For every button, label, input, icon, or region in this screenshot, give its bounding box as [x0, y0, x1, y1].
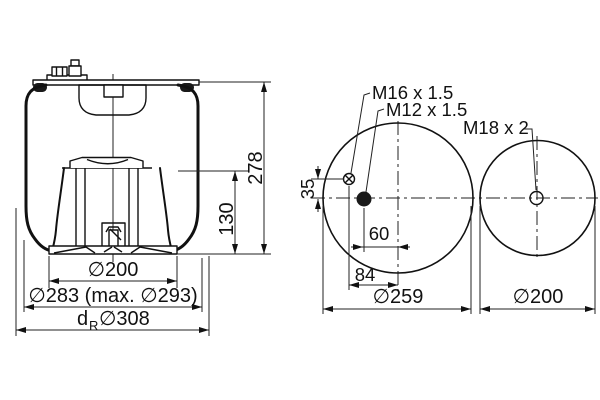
bellows-outline-left	[26, 85, 52, 251]
drawing-svg: 278 130 ∅200 ∅283 (max. ∅293)	[0, 0, 600, 400]
dimension-dia-piston: ∅200	[49, 256, 177, 288]
dimension-dia-259: ∅259	[323, 206, 471, 314]
dim-35-label: 35	[297, 179, 318, 200]
dim-dia-200-top-label: ∅200	[513, 286, 564, 308]
mounting-stud	[69, 60, 81, 76]
dim-dia-bellows-label: ∅283 (max. ∅293)	[28, 285, 197, 307]
dim-84-label: 84	[355, 264, 376, 285]
m12-label: M12 x 1.5	[386, 99, 467, 120]
m12-leader-line	[366, 109, 384, 192]
m16-hole	[344, 174, 355, 185]
dim-dr-sub: R	[89, 318, 98, 333]
top-views: M16 x 1.5 M12 x 1.5 M18 x 2 35 60	[297, 82, 598, 314]
dim-dr-value: ∅308	[99, 308, 150, 330]
dim-60-label: 60	[369, 223, 390, 244]
dimension-offset-60: 60	[351, 208, 410, 252]
dimension-offset-35: 35	[297, 166, 344, 212]
m18-label: M18 x 2	[463, 117, 529, 138]
bellows-outline-right	[172, 85, 198, 251]
dim-278-label: 278	[245, 151, 267, 184]
rolling-lobe-left	[52, 168, 64, 251]
technical-drawing: 278 130 ∅200 ∅283 (max. ∅293)	[0, 0, 600, 400]
dim-dr-prefix: d	[77, 308, 88, 330]
m12-hole	[357, 192, 372, 207]
air-fitting-bolt	[52, 67, 67, 76]
m18-leader-line	[524, 129, 536, 190]
dim-dia-piston-label: ∅200	[88, 259, 139, 281]
rolling-lobe-right	[160, 168, 172, 251]
side-view: 278 130 ∅200 ∅283 (max. ∅293)	[16, 60, 271, 336]
dim-130-label: 130	[216, 202, 238, 235]
dim-dia-259-label: ∅259	[373, 286, 424, 308]
bumper-notch	[104, 85, 123, 97]
top-plate	[33, 80, 199, 85]
